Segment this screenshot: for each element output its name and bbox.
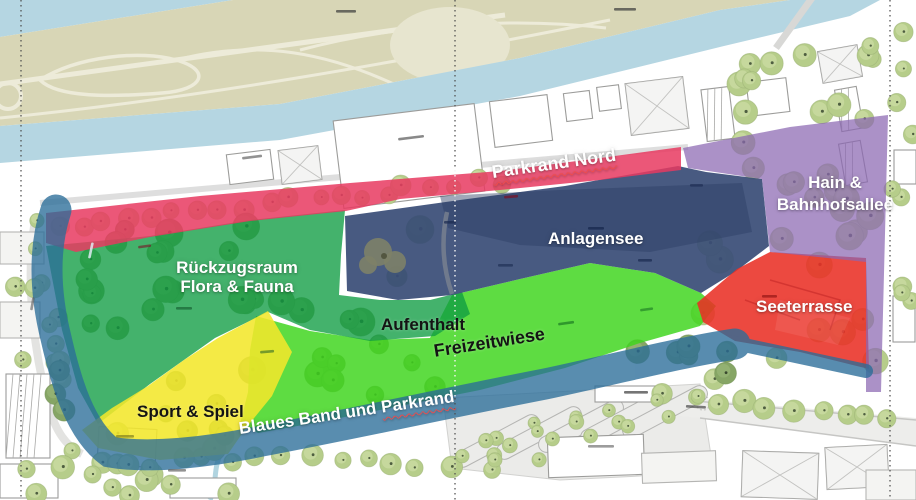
park-concept-map: Parkrand Nord Anlagensee Hain & Bahnhofs… (0, 0, 916, 500)
site-plan-canvas (0, 0, 916, 500)
